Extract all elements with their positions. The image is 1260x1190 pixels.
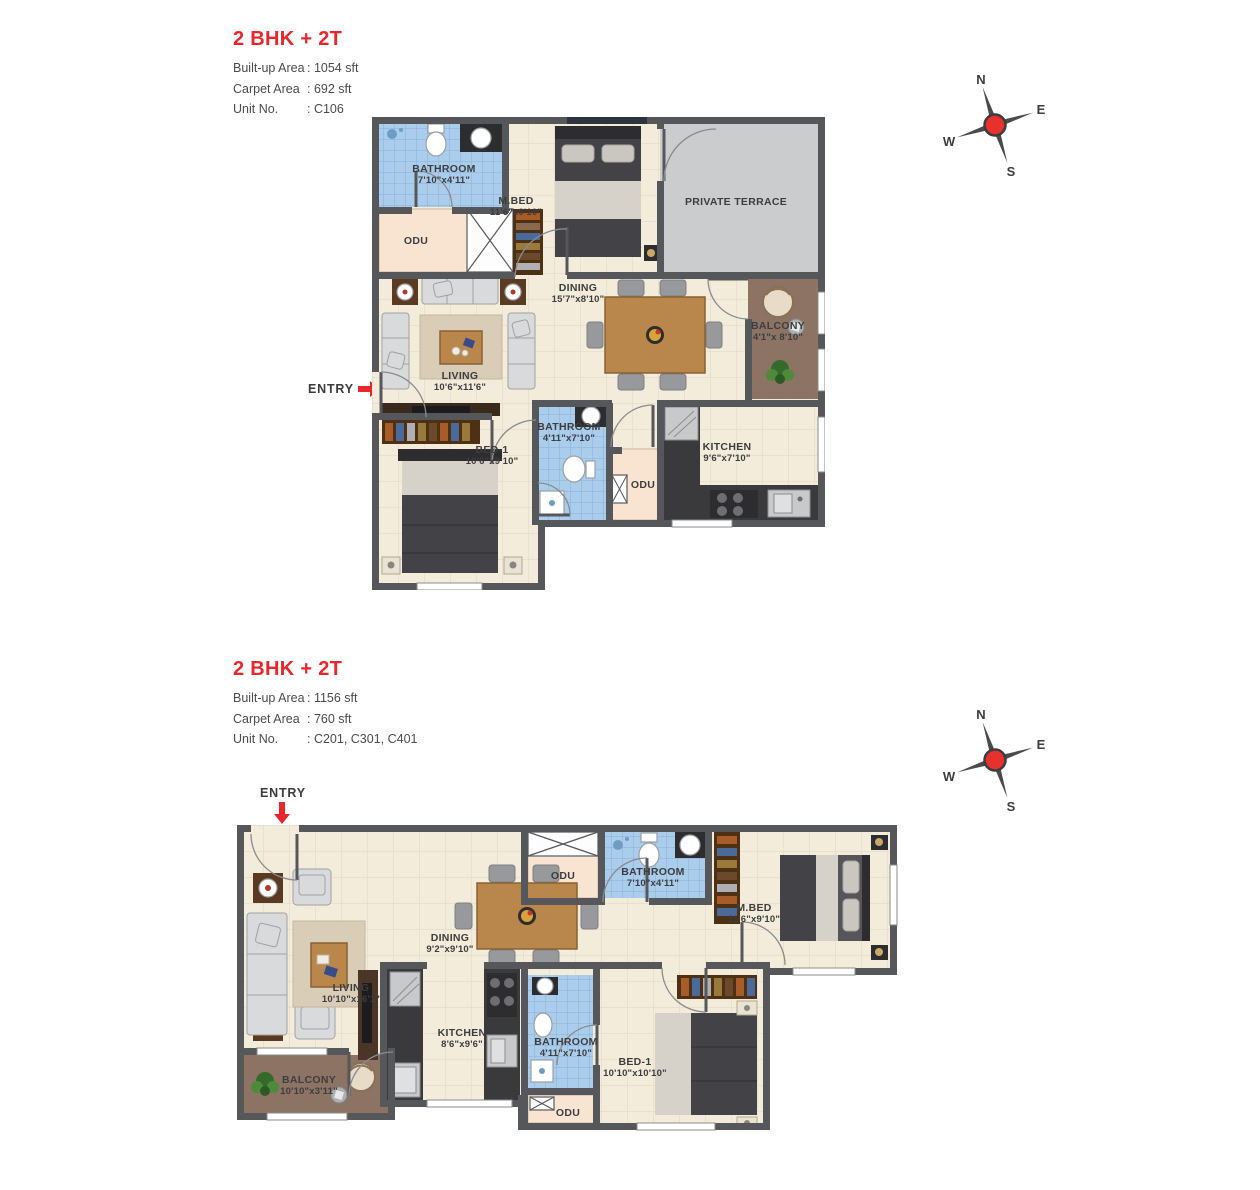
room-label-kitchen: KITCHEN 8'6"x9'6" bbox=[438, 1027, 487, 1051]
plan1-entry-label: ENTRY bbox=[308, 382, 354, 396]
carpet-label: Carpet Area bbox=[233, 79, 307, 100]
room-label-bathroom-1: BATHROOM 7'10"x4'11" bbox=[412, 163, 475, 187]
compass-center bbox=[985, 115, 1006, 136]
odu-bottom-crossbox bbox=[530, 1097, 554, 1110]
compass-e-label: E bbox=[1037, 102, 1046, 117]
room-label-odu-bottom: ODU bbox=[556, 1107, 580, 1119]
room-label-balcony: BALCONY 10'10"x3'11" bbox=[280, 1074, 338, 1098]
room-label-bathroom-2: BATHROOM 4'11"x7'10" bbox=[537, 421, 600, 445]
mbed-side-table bbox=[644, 245, 658, 261]
plan2-header: 2 BHK + 2T Built-up Area : 1156 sft Carp… bbox=[233, 658, 418, 750]
compass-center bbox=[985, 750, 1006, 771]
page: 2 BHK + 2T Built-up Area : 1054 sft Carp… bbox=[0, 0, 1260, 1190]
floor-plan-1: BATHROOM 7'10"x4'11" ODU M.BED 11'6"x9'1… bbox=[372, 117, 825, 590]
unit-label: Unit No. bbox=[233, 729, 307, 750]
compass-s-label: S bbox=[1007, 799, 1016, 814]
room-label-mbed: M.BED 11'6"x9'10" bbox=[728, 902, 780, 926]
bed1-bed bbox=[655, 1001, 757, 1129]
plan2-builtup-row: Built-up Area : 1156 sft bbox=[233, 688, 418, 709]
room-label-dining: DINING 15'7"x8'10" bbox=[552, 282, 605, 306]
room-label-terrace: PRIVATE TERRACE bbox=[685, 196, 787, 208]
room-label-bed1: BED-1 10'10"x10'10" bbox=[603, 1056, 667, 1080]
plan2-entry-tag: ENTRY bbox=[260, 786, 306, 824]
plan2-entry-label: ENTRY bbox=[260, 786, 306, 800]
bed1-wardrobe bbox=[677, 975, 757, 999]
entry-arrow-down-icon bbox=[274, 802, 290, 824]
floor-plan-1-drawing bbox=[372, 117, 825, 590]
builtup-label: Built-up Area bbox=[233, 58, 307, 79]
odu-top-crossbox bbox=[528, 832, 598, 856]
bed1-wardrobe bbox=[382, 420, 480, 444]
room-label-balcony: BALCONY 4'1"x 8'10" bbox=[751, 320, 805, 344]
builtup-label: Built-up Area bbox=[233, 688, 307, 709]
room-label-mbed: M.BED 11'6"x9'10" bbox=[490, 195, 542, 219]
compass-w-label: W bbox=[943, 134, 956, 149]
room-label-odu-top: ODU bbox=[551, 870, 575, 882]
unit-value: : C106 bbox=[307, 99, 344, 120]
room-label-bathroom-top: BATHROOM 7'10"x4'11" bbox=[621, 866, 684, 890]
room-label-dining: DINING 9'2"x9'10" bbox=[426, 932, 473, 956]
unit-label: Unit No. bbox=[233, 99, 307, 120]
room-label-odu-2: ODU bbox=[631, 479, 655, 491]
builtup-value: : 1156 sft bbox=[307, 688, 358, 709]
compass-n-label: N bbox=[976, 72, 985, 87]
room-label-kitchen: KITCHEN 9'6"x7'10" bbox=[703, 441, 752, 465]
carpet-value: : 692 sft bbox=[307, 79, 351, 100]
floor-plan-2: ODU BATHROOM 7'10"x4'11" M.BED 11'6"x9'1… bbox=[237, 825, 900, 1160]
room-label-bathroom-bottom: BATHROOM 4'11"x7'10" bbox=[534, 1036, 597, 1060]
carpet-value: : 760 sft bbox=[307, 709, 351, 730]
compass-n-label: N bbox=[976, 707, 985, 722]
plan1-title: 2 BHK + 2T bbox=[233, 28, 358, 51]
unit-value: : C201, C301, C401 bbox=[307, 729, 418, 750]
plan2-title: 2 BHK + 2T bbox=[233, 658, 418, 681]
compass-w-label: W bbox=[943, 769, 956, 784]
plan1-header: 2 BHK + 2T Built-up Area : 1054 sft Carp… bbox=[233, 28, 358, 120]
room-label-living: LIVING 10'6"x11'6" bbox=[434, 370, 486, 394]
plan1-entry-tag: ENTRY bbox=[308, 381, 380, 397]
room-label-bed1: BED-1 10'6"x9'10" bbox=[466, 444, 519, 468]
plan1-carpet-row: Carpet Area : 692 sft bbox=[233, 79, 358, 100]
builtup-value: : 1054 sft bbox=[307, 58, 358, 79]
compass-rose-1: N E W S bbox=[940, 70, 1050, 180]
compass-e-label: E bbox=[1037, 737, 1046, 752]
odu2-crossbox bbox=[612, 475, 627, 503]
plan2-unit-row: Unit No. : C201, C301, C401 bbox=[233, 729, 418, 750]
carpet-label: Carpet Area bbox=[233, 709, 307, 730]
plan1-unit-row: Unit No. : C106 bbox=[233, 99, 358, 120]
compass-s-label: S bbox=[1007, 164, 1016, 179]
dining-set bbox=[587, 280, 722, 390]
plan2-carpet-row: Carpet Area : 760 sft bbox=[233, 709, 418, 730]
plan1-builtup-row: Built-up Area : 1054 sft bbox=[233, 58, 358, 79]
compass-rose-2: N E W S bbox=[940, 705, 1050, 815]
room-label-living: LIVING 10'10"x16'1" bbox=[322, 982, 380, 1006]
room-label-odu-1: ODU bbox=[404, 235, 428, 247]
